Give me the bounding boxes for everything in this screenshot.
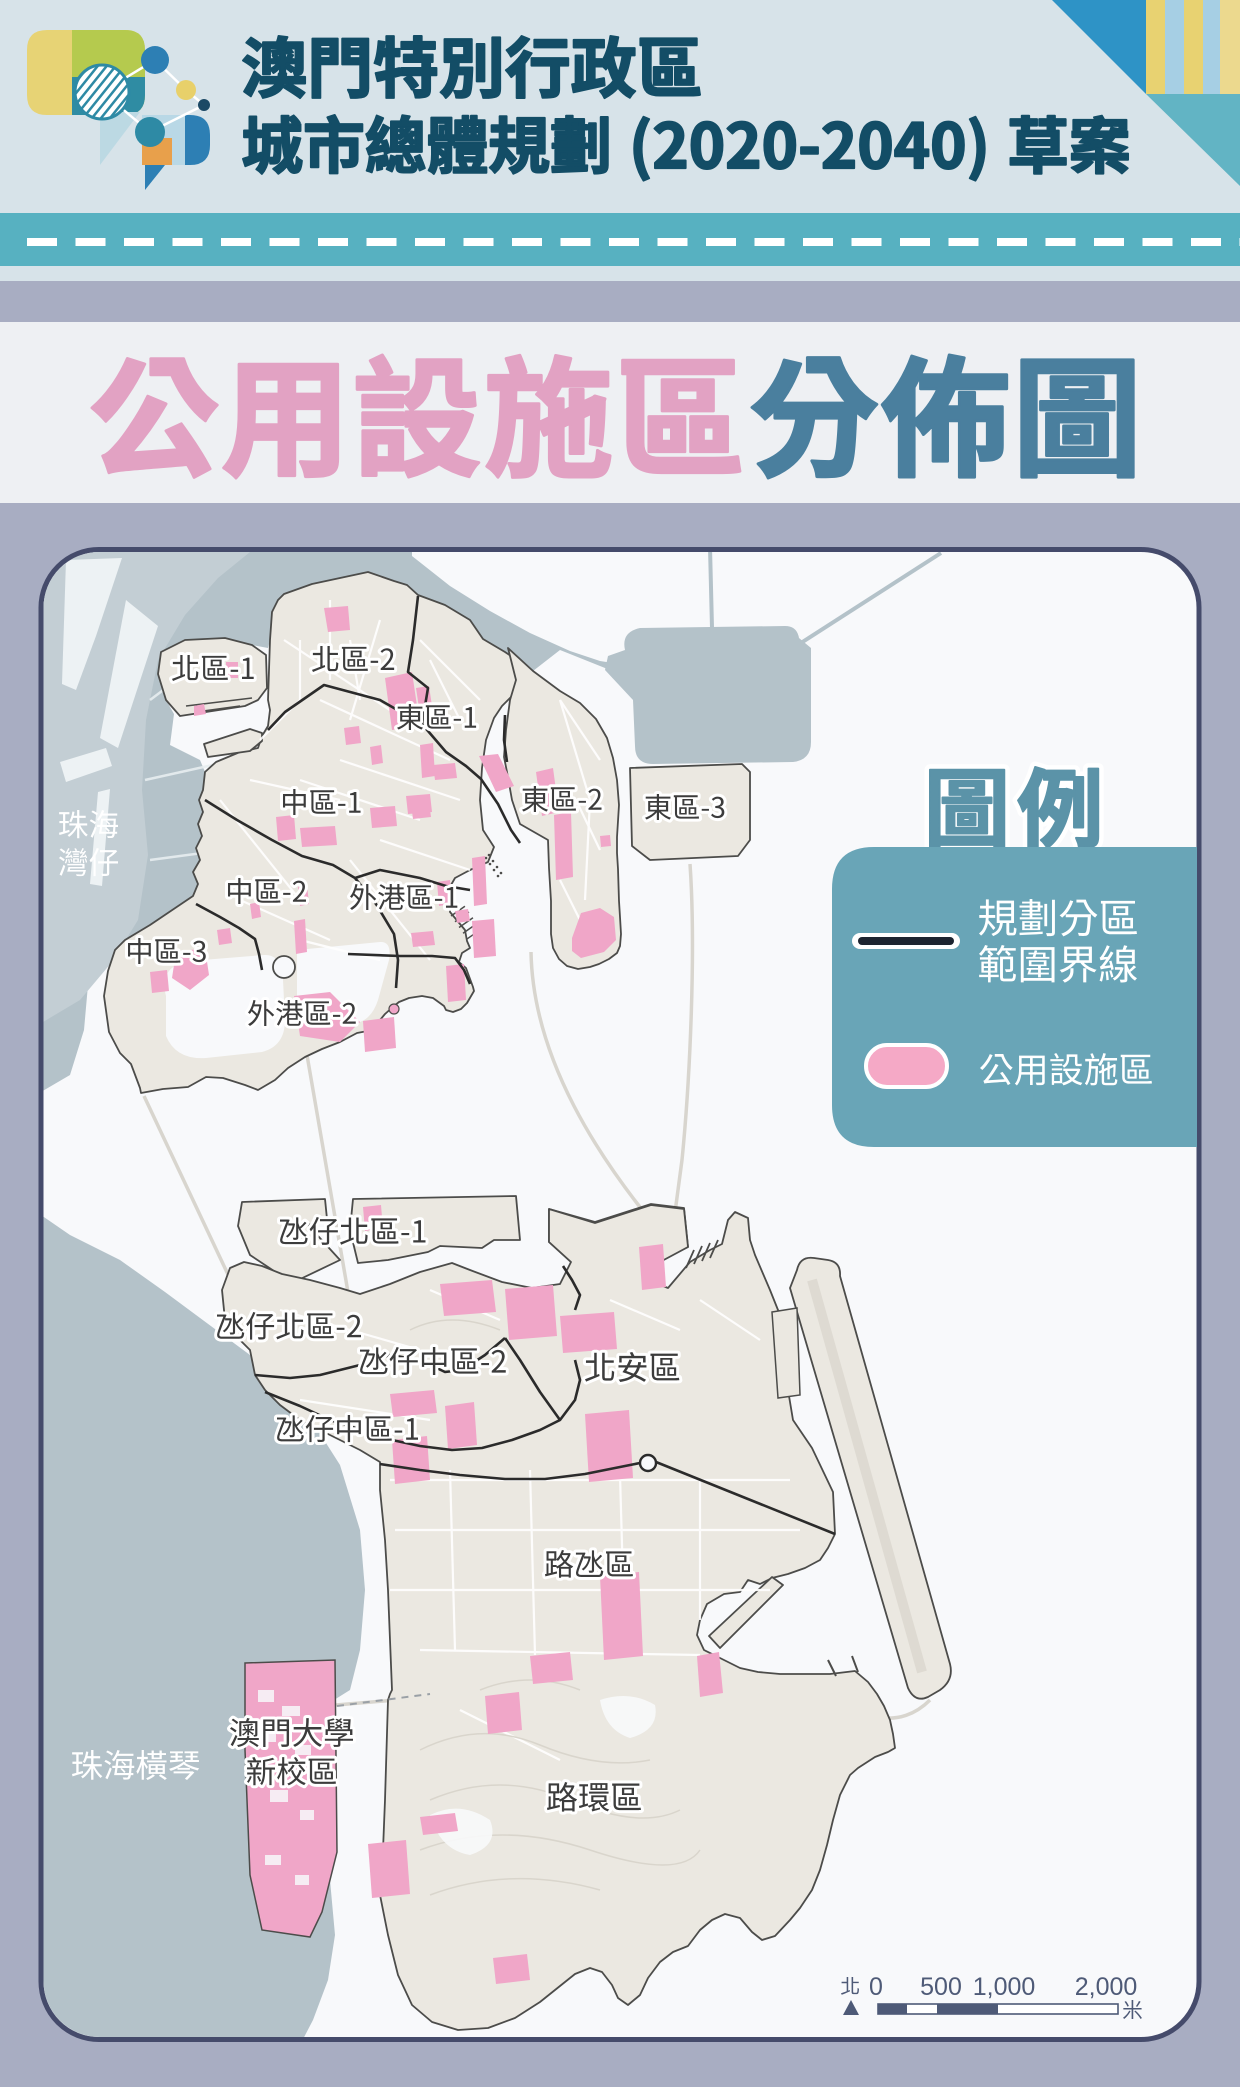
svg-text:0: 0 xyxy=(869,1973,883,2001)
svg-text:500: 500 xyxy=(920,1973,962,2001)
svg-text:1,000: 1,000 xyxy=(973,1973,1036,2001)
svg-text:2,000: 2,000 xyxy=(1075,1973,1138,2001)
